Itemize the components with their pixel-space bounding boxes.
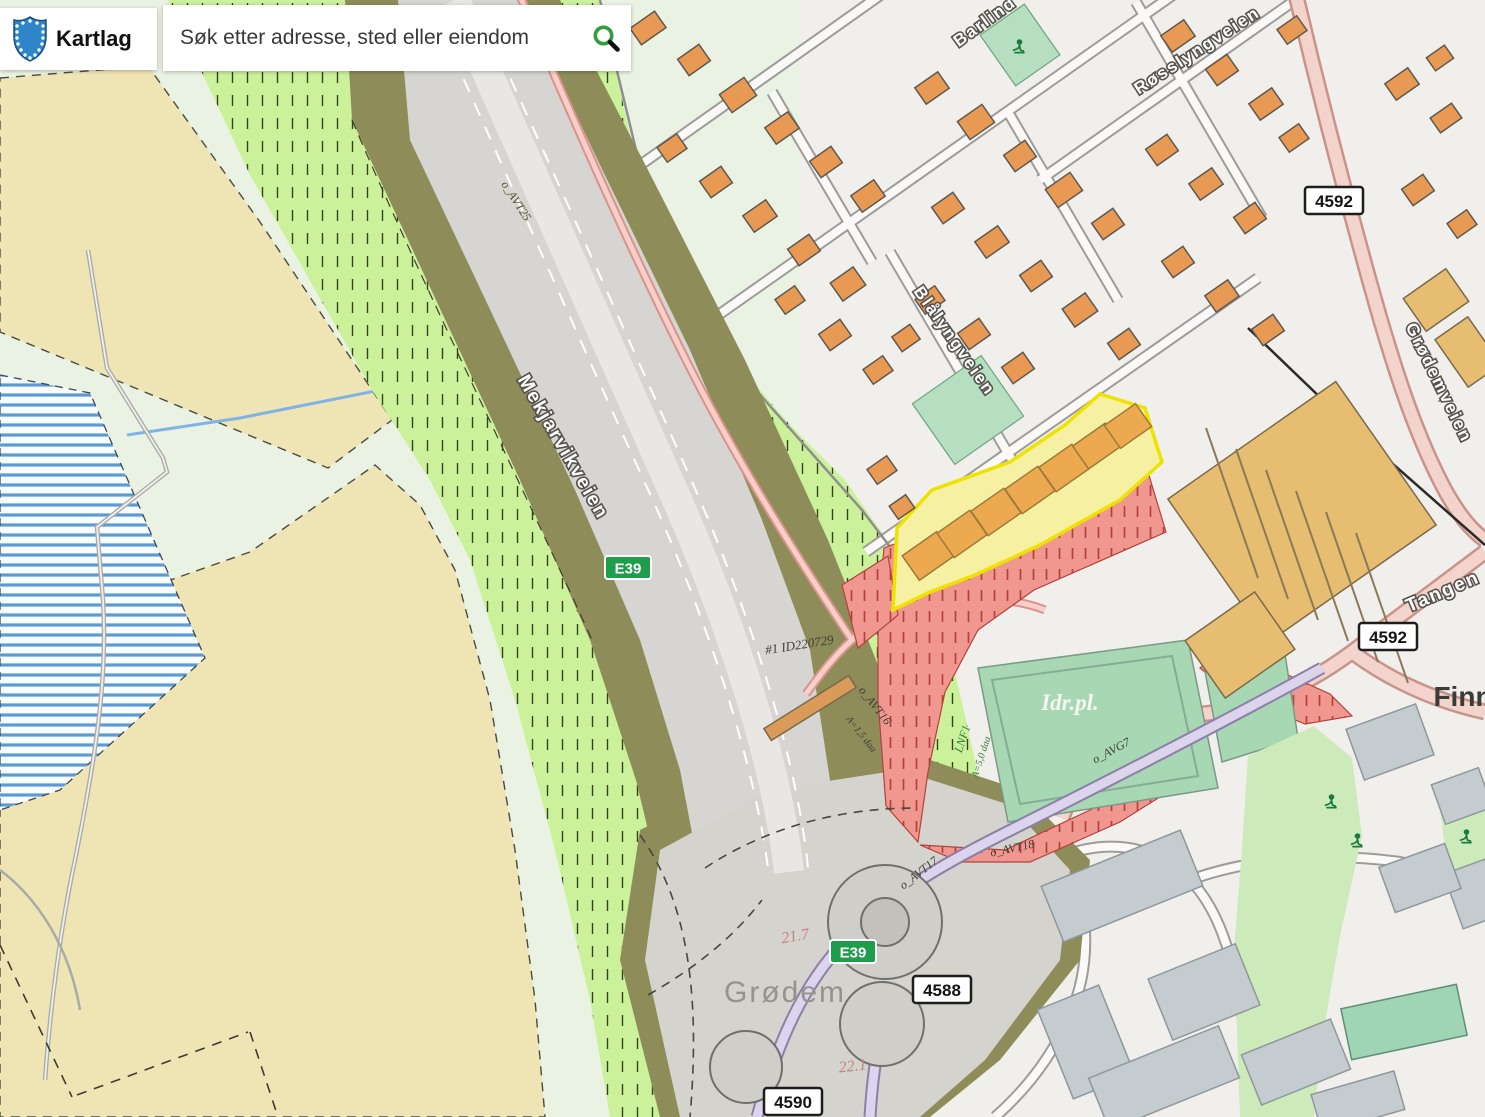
county-road-sign: 4588 [913, 976, 971, 1003]
app-title: Kartlag [56, 26, 132, 52]
municipality-crest-icon [13, 16, 47, 62]
svg-text:E39: E39 [840, 945, 867, 962]
svg-text:4588: 4588 [923, 981, 961, 1000]
place-label: Idr.pl. [1040, 690, 1099, 715]
svg-text:4592: 4592 [1369, 628, 1407, 647]
e-route-sign: E39 [830, 940, 876, 963]
map-canvas[interactable]: o_AVT25#1 ID220729o_AVT16A=1,5 daao_AVT1… [0, 0, 1485, 1117]
county-road-sign: 4592 [1305, 187, 1363, 214]
map-viewer: o_AVT25#1 ID220729o_AVT16A=1,5 daao_AVT1… [0, 0, 1485, 1117]
zone-label: 22.1 [838, 1057, 868, 1077]
county-road-sign: 4592 [1359, 623, 1417, 650]
e-route-sign: E39 [605, 556, 651, 579]
search-box [163, 5, 631, 71]
place-label: Grødem [724, 976, 846, 1009]
svg-text:4590: 4590 [774, 1093, 812, 1112]
county-road-sign: 4590 [764, 1088, 822, 1115]
search-input[interactable] [163, 26, 591, 50]
search-icon[interactable] [591, 23, 621, 53]
svg-text:E39: E39 [615, 561, 642, 578]
app-logo-panel: Kartlag [0, 8, 157, 70]
svg-text:4592: 4592 [1315, 192, 1353, 211]
place-label: Finn [1433, 681, 1485, 712]
